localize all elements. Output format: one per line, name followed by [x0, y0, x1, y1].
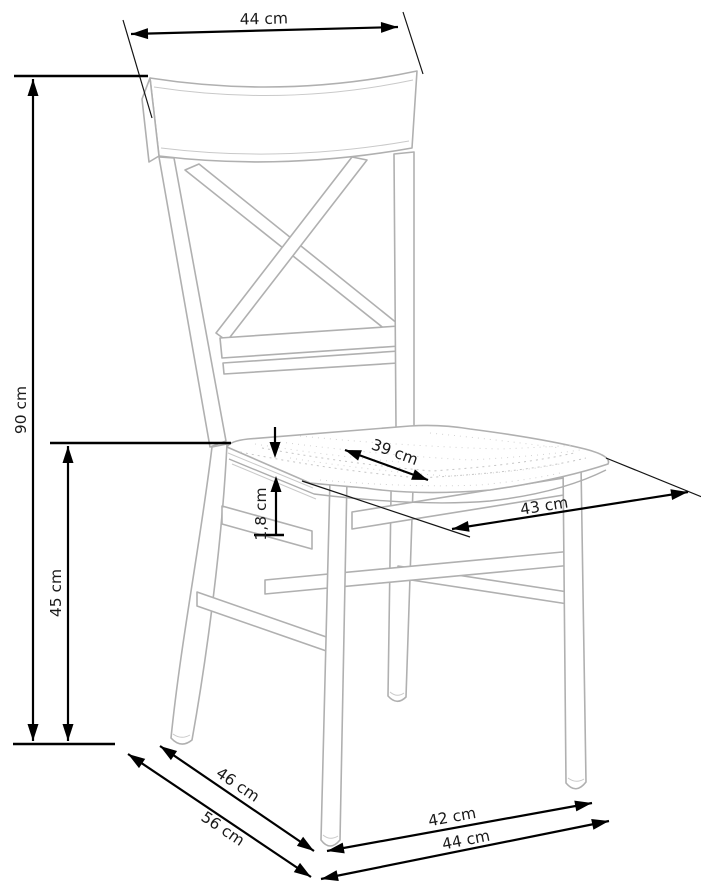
x-brace-right-to-left [216, 157, 367, 341]
backrest-left-stile [159, 157, 226, 447]
front-left-leg [321, 478, 347, 846]
arrowhead [574, 801, 592, 812]
arrowhead [63, 724, 74, 741]
arrowhead [28, 79, 39, 96]
arrowhead [128, 754, 145, 768]
dimension-total-height: 90 cm [12, 76, 148, 744]
chair-dimension-diagram: 44 cm 90 cm 45 cm 39 cm 43 cm [0, 0, 701, 883]
left-stretcher [197, 592, 335, 654]
seat-thickness-label: 1,8 cm [252, 487, 270, 540]
backrest-x-brace [185, 157, 398, 341]
arrowhead [63, 446, 74, 463]
arrowhead [160, 746, 177, 760]
arrowhead [131, 28, 148, 39]
arrowhead [28, 724, 39, 741]
backrest-right-stile [394, 152, 414, 428]
backrest-top-rail [142, 71, 417, 162]
diagram-canvas: 44 cm 90 cm 45 cm 39 cm 43 cm [0, 0, 701, 883]
total-height-label: 90 cm [12, 386, 30, 434]
seat-height-label: 45 cm [47, 569, 65, 617]
chair-sketch [142, 71, 609, 846]
arrowhead [297, 837, 314, 851]
footprint-depth-outer-label: 56 cm [198, 808, 248, 850]
backrest-lower-rail [220, 326, 400, 374]
arrowhead [381, 22, 398, 33]
arrowhead [452, 521, 470, 532]
back-width-label: 44 cm [240, 9, 289, 28]
arrowhead [294, 863, 311, 877]
dimension-footprint-width-outer: 44 cm [321, 819, 609, 881]
